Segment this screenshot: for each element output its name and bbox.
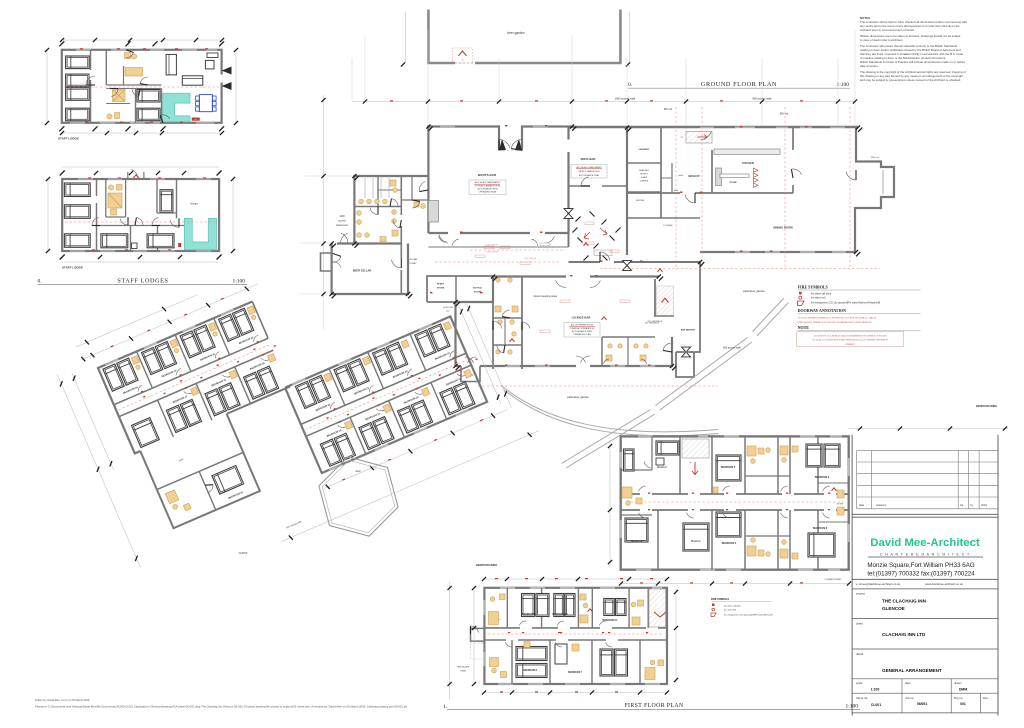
svg-text:fire alarm bell: fire alarm bell [724,610,737,612]
svg-text:BEDROOM 7: BEDROOM 7 [568,672,583,674]
svg-text:800 exit: 800 exit [871,156,879,159]
svg-text:1:100: 1:100 [871,688,880,692]
svg-text:Job no.: Job no. [905,696,914,700]
svg-text:scale: scale [856,681,863,685]
svg-text:fire extinguisher CO2 dry powd: fire extinguisher CO2 dry powder/BPV wat… [724,614,774,617]
svg-text:NORTH: NORTH [239,552,248,555]
svg-text:drawn: drawn [954,681,962,685]
svg-text:BEDROOM 3: BEDROOM 3 [815,476,830,479]
svg-text:client: client [856,622,863,626]
svg-text:fire alarm call point: fire alarm call point [724,605,741,608]
svg-text:C H A R T E R E D A R C H: C H A R T E R E D A R C H I T E C T [880,553,970,557]
svg-text:WORST: WORST [640,174,648,176]
svg-text:OPERATING PLAN: OPERATING PLAN [479,191,497,194]
svg-text:date: date [905,681,911,685]
svg-text:WC VESTIBULE: WC VESTIBULE [645,323,660,325]
svg-text:TO PUBLIC AREAS FOR 80: TO PUBLIC AREAS FOR 80 [475,184,501,187]
svg-text:access: access [338,220,346,223]
svg-text:Room 1: Room 1 [691,540,701,543]
svg-text:CL001: CL001 [871,703,881,707]
svg-text:Filename: C:/Documents and Set: Filename: C:/Documents and Settings/Davi… [35,705,407,709]
svg-text:FIRE SYMBOLS: FIRE SYMBOLS [711,598,729,601]
svg-text:COMMON WING: COMMON WING [825,579,842,581]
svg-text:ACCESS TO ALL PUBLIC AREAS PER: ACCESS TO ALL PUBLIC AREAS PERMITTED TO … [813,334,887,337]
svg-text:BAR SERVERY: BAR SERVERY [681,329,696,332]
svg-text:1:100: 1:100 [836,82,849,88]
svg-text:WASH UP: WASH UP [688,175,700,178]
svg-text:STAFF LODGE: STAFF LODGE [58,137,79,141]
svg-text:detail: detail [856,652,864,656]
svg-text:lounge: lounge [190,203,198,206]
svg-text:06/051: 06/051 [917,702,927,706]
svg-text:Room 1A: Room 1A [632,540,643,543]
svg-text:and may be subject to prosecut: and may be subject to prosecutions unles… [860,78,961,82]
svg-text:In case of doubt refer to Arch: In case of doubt refer to Architect. [860,38,903,42]
svg-text:ACTUAL DOORS NORMALLY IN USE/W: ACTUAL DOORS NORMALLY IN USE/WA ACCESS T… [798,317,877,320]
svg-text:BEDROOM 5: BEDROOM 5 [721,466,736,469]
svg-text:STAFF LODGES: STAFF LODGES [117,277,168,284]
svg-text:BEER CELLAR: BEER CELLAR [353,269,372,273]
svg-text:001: 001 [960,702,966,706]
svg-text:Room 2: Room 2 [657,466,667,469]
svg-text:date of tender.: date of tender. [860,64,879,68]
svg-text:deck: deck [355,470,361,473]
svg-text:GROUND FLOOR PLAN: GROUND FLOOR PLAN [701,81,777,88]
svg-text:STORE: STORE [837,504,844,506]
svg-text:800 exit: 800 exit [664,108,673,111]
svg-text:fire extinguisher CO2 dry powd: fire extinguisher CO2 dry powder/BPV wat… [811,302,880,305]
svg-text:Client ref.: Client ref. [856,696,868,700]
svg-text:CELLAR: CELLAR [409,258,418,261]
svg-text:SPIRIT: SPIRIT [437,284,445,286]
svg-text:BOOTS BAR: BOOTS BAR [478,173,497,177]
svg-text:BEDROOM 6: BEDROOM 6 [813,527,828,530]
svg-text:revisions: revisions [876,503,887,507]
svg-text:over: over [446,311,450,313]
svg-text:STORE: STORE [437,288,445,290]
svg-text:DRYING: DRYING [636,200,645,202]
svg-text:NOTE: NOTE [798,325,810,330]
svg-text:BEDROOM 4: BEDROOM 4 [722,542,737,545]
svg-text:fire alarm bell: fire alarm bell [811,297,826,300]
svg-text:patio/beer garden: patio/beer garden [743,289,765,293]
svg-text:LOUNGE: LOUNGE [663,225,673,227]
svg-text:FIRE SYMBOLS: FIRE SYMBOLS [798,285,829,290]
svg-text:LAUNDRY: LAUNDRY [639,148,650,151]
svg-text:date: date [859,503,865,507]
svg-text:e: dmee@davidmee-architect.co.: e: dmee@davidmee-architect.co.uk [856,582,901,586]
svg-text:FIRE ESCAPE: FIRE ESCAPE [457,666,470,669]
svg-text:SNUG & TEAROOM 40: SNUG & TEAROOM 40 [578,170,600,173]
svg-text:Drg no.: Drg no. [954,696,963,700]
svg-text:Architect prior to commencemen: Architect prior to commencement of works… [860,28,915,32]
svg-text:SNUG BAR: SNUG BAR [581,157,596,161]
svg-text:GLENCOE: GLENCOE [882,606,905,611]
svg-text:ACCORDANCE WITH: ACCORDANCE WITH [478,188,498,191]
svg-text:CONC RIDGE: CONC RIDGE [486,252,499,254]
svg-text:CLACHAIG INN LTD: CLACHAIG INN LTD [882,632,926,637]
svg-text:tel:(01397) 700332 fax:(01397): tel:(01397) 700332 fax:(01397) 700224 [867,571,975,578]
svg-text:STORE: STORE [729,182,737,184]
svg-text:1200: 1200 [339,215,345,218]
svg-text:fire alarm call point: fire alarm call point [811,292,831,295]
svg-text:www.davidmee-architect.co.uk: www.davidmee-architect.co.uk [925,582,963,586]
svg-text:BEDROOM WING: BEDROOM WING [476,563,497,567]
svg-text:DINING ROOM: DINING ROOM [773,226,793,230]
svg-text:ACCORDANCE WITH: ACCORDANCE WITH [572,330,592,333]
svg-text:DMM: DMM [959,688,967,692]
svg-text:Drawn by: David Mee. A (xx) on: Drawn by: David Mee. A (xx) on 06 March … [35,698,90,702]
svg-text:BOTTLE: BOTTLE [473,288,482,290]
svg-text:BEDROOM WING: BEDROOM WING [976,404,997,408]
svg-text:CONC RIDGE: CONC RIDGE [486,245,499,247]
svg-text:Rev.: Rev. [983,696,989,700]
svg-text:boiler: boiler [679,175,684,177]
svg-text:mixed seating area: mixed seating area [533,294,557,298]
svg-text:OPERATING PLAN: OPERATING PLAN [573,333,591,336]
svg-text:patio/beer garden: patio/beer garden [567,395,589,399]
svg-text:800 exit: 800 exit [780,113,789,116]
svg-text:ACC No PERMITTED 90: ACC No PERMITTED 90 [571,324,594,327]
svg-text:1.: 1. [443,704,448,710]
svg-text:project: project [856,592,865,596]
svg-text:1:100: 1:100 [232,278,245,284]
svg-text:THE CLACHAIG INN: THE CLACHAIG INN [882,599,927,604]
svg-text:BEDROOM 8: BEDROOM 8 [523,670,538,672]
svg-text:DOORWAY ANNOTATION: DOORWAY ANNOTATION [798,308,847,313]
svg-text:ACCORDANCE PLAN: ACCORDANCE PLAN [579,174,600,177]
svg-text:800 access walk: 800 access walk [752,97,772,101]
svg-text:OLD, IN ACCORDANCE WITH OPERAT: OLD, IN ACCORDANCE WITH OPERATING PLAN, … [813,339,888,342]
svg-text:OTHER ACCORDANCE 40: OTHER ACCORDANCE 40 [570,327,595,330]
svg-text:David Mee-Architect: David Mee-Architect [870,537,980,549]
svg-text:BEDROOM 9: BEDROOM 9 [522,614,537,616]
svg-text:1st FLOOR: 1st FLOOR [443,306,454,309]
svg-text:STAFF LODGE: STAFF LODGE [62,266,83,270]
svg-text:0.: 0. [38,278,43,284]
svg-text:800 access walk: 800 access walk [723,347,741,350]
svg-text:GENERAL ARRANGEMENT: GENERAL ARRANGEMENT [882,668,942,673]
svg-text:DRAUGHT: DRAUGHT [639,169,650,172]
svg-text:1800 access walk: 1800 access walk [615,97,636,101]
svg-text:FIRST FLOOR PLAN: FIRST FLOOR PLAN [624,703,684,709]
svg-text:CONC RIDGE: CONC RIDGE [524,258,537,260]
svg-text:LOUNGE BAR: LOUNGE BAR [572,316,591,320]
svg-text:LOBBY: LOBBY [409,263,417,265]
svg-text:O'BRIEN: O'BRIEN [845,343,855,346]
svg-text:BEDROOM 10: BEDROOM 10 [552,614,568,616]
svg-text:chk'd: chk'd [981,503,988,507]
svg-text:0.: 0. [628,82,633,88]
svg-text:KITCHEN: KITCHEN [742,161,754,165]
svg-text:FIRE DOORS NORMALLY IN USE AS: FIRE DOORS NORMALLY IN USE AS EMERGENCY … [798,321,873,324]
svg-text:CHANGE: CHANGE [640,180,649,183]
svg-text:beer garden: beer garden [507,31,524,35]
svg-text:ACC No ACCOMMODATED: ACC No ACCOMMODATED [475,181,501,184]
svg-text:Monzie Square,Fort William PH: Monzie Square,Fort William PH33 6AG [867,562,974,569]
svg-text:& BAIR: & BAIR [641,176,648,179]
svg-text:shared exit: shared exit [336,224,348,227]
svg-text:STAIR: STAIR [460,670,466,673]
